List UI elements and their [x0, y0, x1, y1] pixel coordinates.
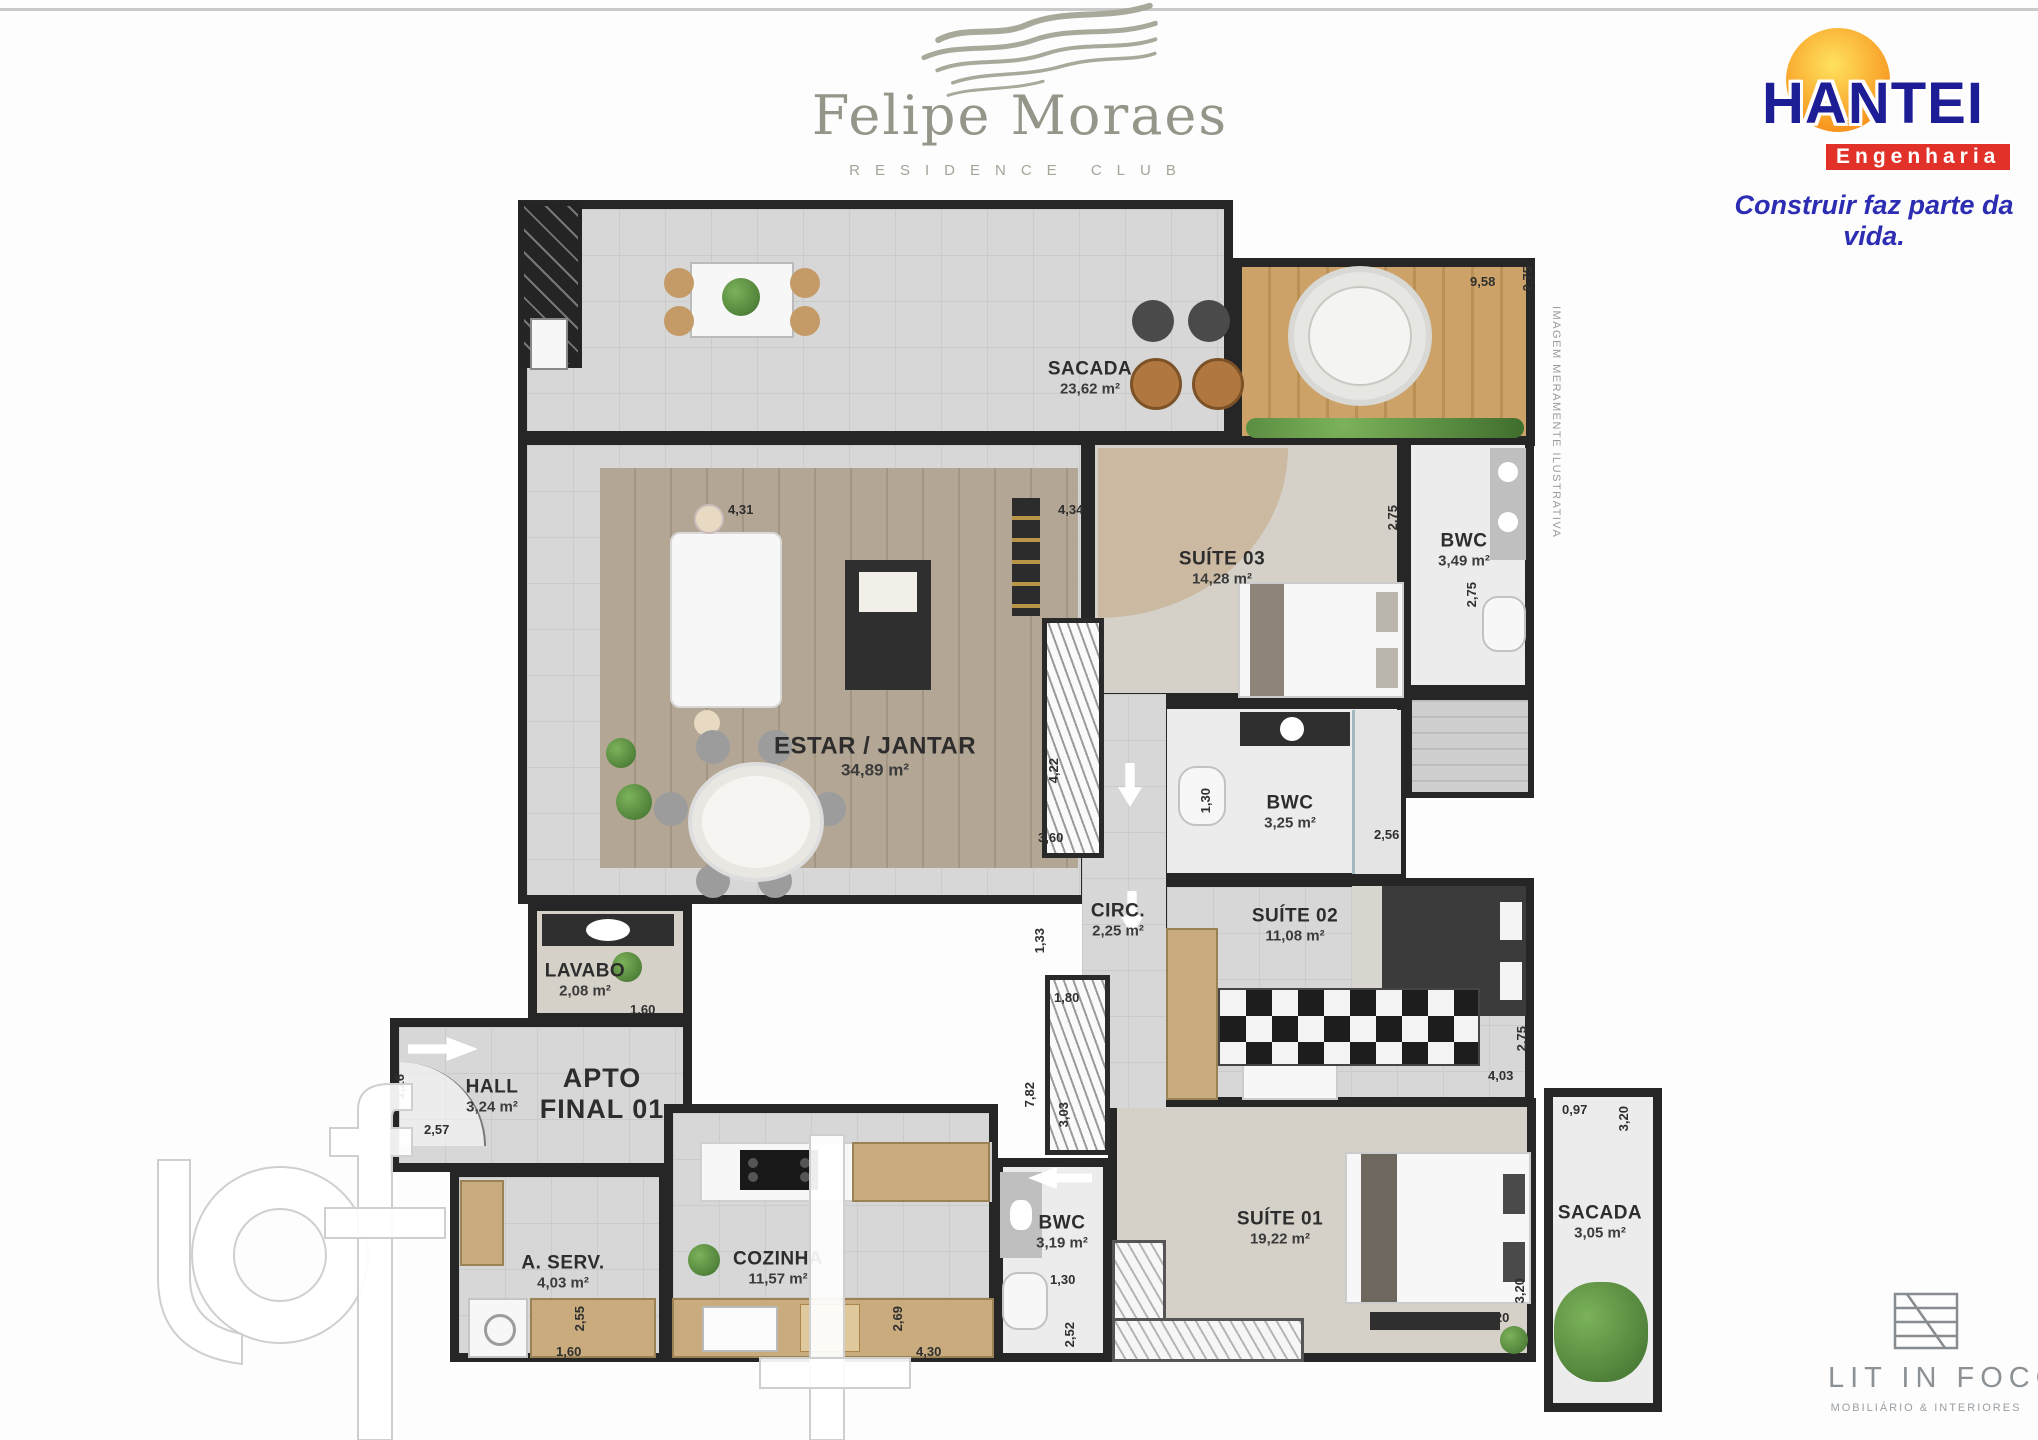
- room-label-sacada-suite01: SACADA 3,05 m²: [1558, 1202, 1642, 1241]
- pillow: [1500, 962, 1522, 1000]
- dim-label: 4,22: [1046, 758, 1061, 783]
- hantei-division: Engenharia: [1824, 142, 2012, 172]
- living-plant: [616, 784, 652, 820]
- felipe-moraes-subtitle: RESIDENCE CLUB: [760, 162, 1280, 179]
- dim-label: 5,20: [1484, 1310, 1509, 1325]
- dim-label: 2,57: [424, 1122, 449, 1137]
- room-label-bwc-suite03: BWC 3,49 m²: [1438, 530, 1490, 569]
- deck-plants: [1246, 418, 1524, 438]
- dim-label: 2,75: [1520, 266, 1535, 291]
- top-border-line: [0, 8, 2038, 11]
- lavabo-counter: [542, 914, 674, 946]
- balcony-chair: [790, 268, 820, 298]
- letter-f-crossbar: [325, 1208, 445, 1238]
- disclaimer-text: IMAGEM MERAMENTE ILUSTRATIVA: [1550, 306, 1562, 538]
- balcony-chair: [664, 306, 694, 336]
- dim-label: 1,33: [1032, 928, 1047, 953]
- letter-o: [192, 1167, 368, 1343]
- cutting-board: [800, 1304, 860, 1352]
- pouf-wood: [1192, 358, 1244, 410]
- bwc1-toilet: [1002, 1272, 1048, 1330]
- burner: [748, 1158, 758, 1168]
- felipe-moraes-name: Felipe Moraes: [760, 84, 1280, 147]
- closet-hall-1: [1042, 618, 1104, 858]
- dim-label: 3,03: [1056, 1102, 1071, 1127]
- room-label-suite01: SUÍTE 01 19,22 m²: [1237, 1208, 1323, 1247]
- sofa: [670, 532, 782, 708]
- pouf-dark: [1132, 300, 1174, 342]
- dim-label: 4,03: [1488, 1068, 1513, 1083]
- dim-label: 2,56: [1374, 827, 1399, 842]
- dim-label: 2,75: [1385, 505, 1400, 530]
- burner: [748, 1172, 758, 1182]
- pillow: [1503, 1242, 1525, 1282]
- dim-label: 1,60: [556, 1344, 581, 1359]
- sink: [1010, 1200, 1032, 1230]
- sink: [586, 919, 630, 941]
- dim-label: 4,34: [1058, 502, 1083, 517]
- dim-label: 3,20: [1616, 1106, 1631, 1131]
- room-label-suite02: SUÍTE 02 11,08 m²: [1252, 905, 1338, 944]
- room-label-bwc-suite01: BWC 3,19 m²: [1036, 1212, 1088, 1251]
- dining-chair: [696, 730, 730, 764]
- sink: [1280, 717, 1304, 741]
- bwc2-vanity: [1240, 712, 1350, 746]
- washer-door: [484, 1314, 516, 1346]
- ball-lamp: [694, 504, 724, 534]
- dim-label: 4,31: [728, 502, 753, 517]
- room-label-suite03: SUÍTE 03 14,28 m²: [1179, 548, 1265, 587]
- tv-island: [845, 560, 931, 690]
- balcony-centerpiece-plant: [722, 278, 760, 316]
- bwc2-shower: [1352, 710, 1401, 874]
- dim-label: 1,30: [1198, 788, 1213, 813]
- hantei-name: HANTEI: [1728, 70, 2018, 137]
- bwc3-toilet: [1482, 596, 1526, 652]
- lit-in-foco-logo: LIT IN FOCO MOBILIÁRIO & INTERIORES: [1828, 1292, 2024, 1414]
- kitchen-counter: [672, 1298, 994, 1358]
- lit-in-foco-subtitle: MOBILIÁRIO & INTERIORES: [1828, 1402, 2024, 1414]
- burner: [800, 1172, 810, 1182]
- dim-label: 3,20: [1512, 1278, 1527, 1303]
- bwc3-counter: [1490, 448, 1526, 560]
- hantei-tagline: Construir faz parte da vida.: [1714, 190, 2034, 252]
- dim-label: 9,58: [1470, 274, 1495, 289]
- dim-label: 2,55: [572, 1306, 587, 1331]
- jacuzzi: [1288, 266, 1432, 406]
- suite02-wardrobe: [1166, 928, 1218, 1100]
- suite03-bed: [1238, 582, 1404, 698]
- pillow: [1500, 902, 1522, 940]
- dim-label: 2,75: [1514, 1026, 1529, 1051]
- dim-label: 3,60: [1038, 830, 1063, 845]
- suite01-bed: [1345, 1152, 1531, 1304]
- common-stairs: [1406, 694, 1534, 798]
- pouf-dark: [1188, 300, 1230, 342]
- room-sacada-top: [518, 200, 1233, 440]
- room-label-sacada-top: SACADA 23,62 m²: [1048, 358, 1132, 397]
- washer: [468, 1298, 528, 1358]
- room-label-estar: ESTAR / JANTAR 34,89 m²: [774, 732, 976, 779]
- sink: [1498, 462, 1518, 482]
- dim-label: 2,75: [1464, 582, 1479, 607]
- suite02-checker-rug: [1218, 988, 1480, 1066]
- dim-label: 1,30: [1050, 1272, 1075, 1287]
- room-label-bwc-social: BWC 3,25 m²: [1264, 792, 1316, 831]
- room-label-lavabo: LAVABO 2,08 m²: [545, 960, 625, 999]
- pillow: [1376, 592, 1398, 632]
- suite01-closet-h: [1112, 1318, 1304, 1362]
- balcony-chair: [790, 306, 820, 336]
- dining-chair: [654, 792, 688, 826]
- sacada01-bush: [1554, 1282, 1648, 1382]
- letter-l: [158, 1160, 242, 1364]
- pillow: [1503, 1174, 1525, 1214]
- kitchen-plant: [688, 1244, 720, 1276]
- sink: [1498, 512, 1518, 532]
- balcony-chair: [664, 268, 694, 298]
- suite01-bench: [1370, 1312, 1500, 1330]
- dim-label: 2,69: [890, 1306, 905, 1331]
- letter-t-crossbar: [760, 1358, 910, 1388]
- room-label-aserv: A. SERV. 4,03 m²: [521, 1252, 604, 1291]
- aserv-counter: [530, 1298, 656, 1358]
- dim-label: 1,26: [392, 1074, 407, 1099]
- dim-label: 2,52: [1062, 1322, 1077, 1347]
- dim-label: 4,30: [916, 1344, 941, 1359]
- room-label-cozinha: COZINHA 11,57 m²: [733, 1248, 823, 1287]
- dining-table-round: [688, 762, 824, 882]
- bar-shelf: [1012, 498, 1040, 616]
- dim-label: 1,60: [630, 1002, 655, 1017]
- apto-label: APTO FINAL 01: [540, 1063, 665, 1125]
- felipe-moraes-logo: Felipe Moraes RESIDENCE CLUB: [760, 14, 1280, 179]
- dim-label: 7,82: [1022, 1082, 1037, 1107]
- suite01-plant: [1500, 1326, 1528, 1354]
- cooktop: [740, 1150, 818, 1190]
- lit-in-foco-name: LIT IN FOCO: [1828, 1362, 2024, 1395]
- aserv-cabinet: [460, 1180, 504, 1266]
- living-plant: [606, 738, 636, 768]
- bed-runner: [1250, 584, 1284, 696]
- pouf-wood: [1130, 358, 1182, 410]
- room-label-circ: CIRC. 2,25 m²: [1091, 900, 1145, 939]
- dim-label: 0,97: [1562, 1102, 1587, 1117]
- pillow: [1376, 648, 1398, 688]
- island-eat-counter: [852, 1142, 990, 1202]
- floorplan-page: SACADA 23,62 m² SUÍTE 03 14,28 m² BWC 3,…: [0, 0, 2038, 1440]
- shaft-box: [530, 318, 568, 370]
- burner: [800, 1158, 810, 1168]
- artwork: [859, 572, 917, 612]
- room-label-hall: HALL 3,24 m²: [466, 1076, 519, 1115]
- dim-label: 1,80: [1054, 990, 1079, 1005]
- lit-in-foco-icon: [1893, 1292, 1959, 1350]
- kitchen-sink: [702, 1306, 778, 1352]
- bed-runner: [1361, 1154, 1397, 1302]
